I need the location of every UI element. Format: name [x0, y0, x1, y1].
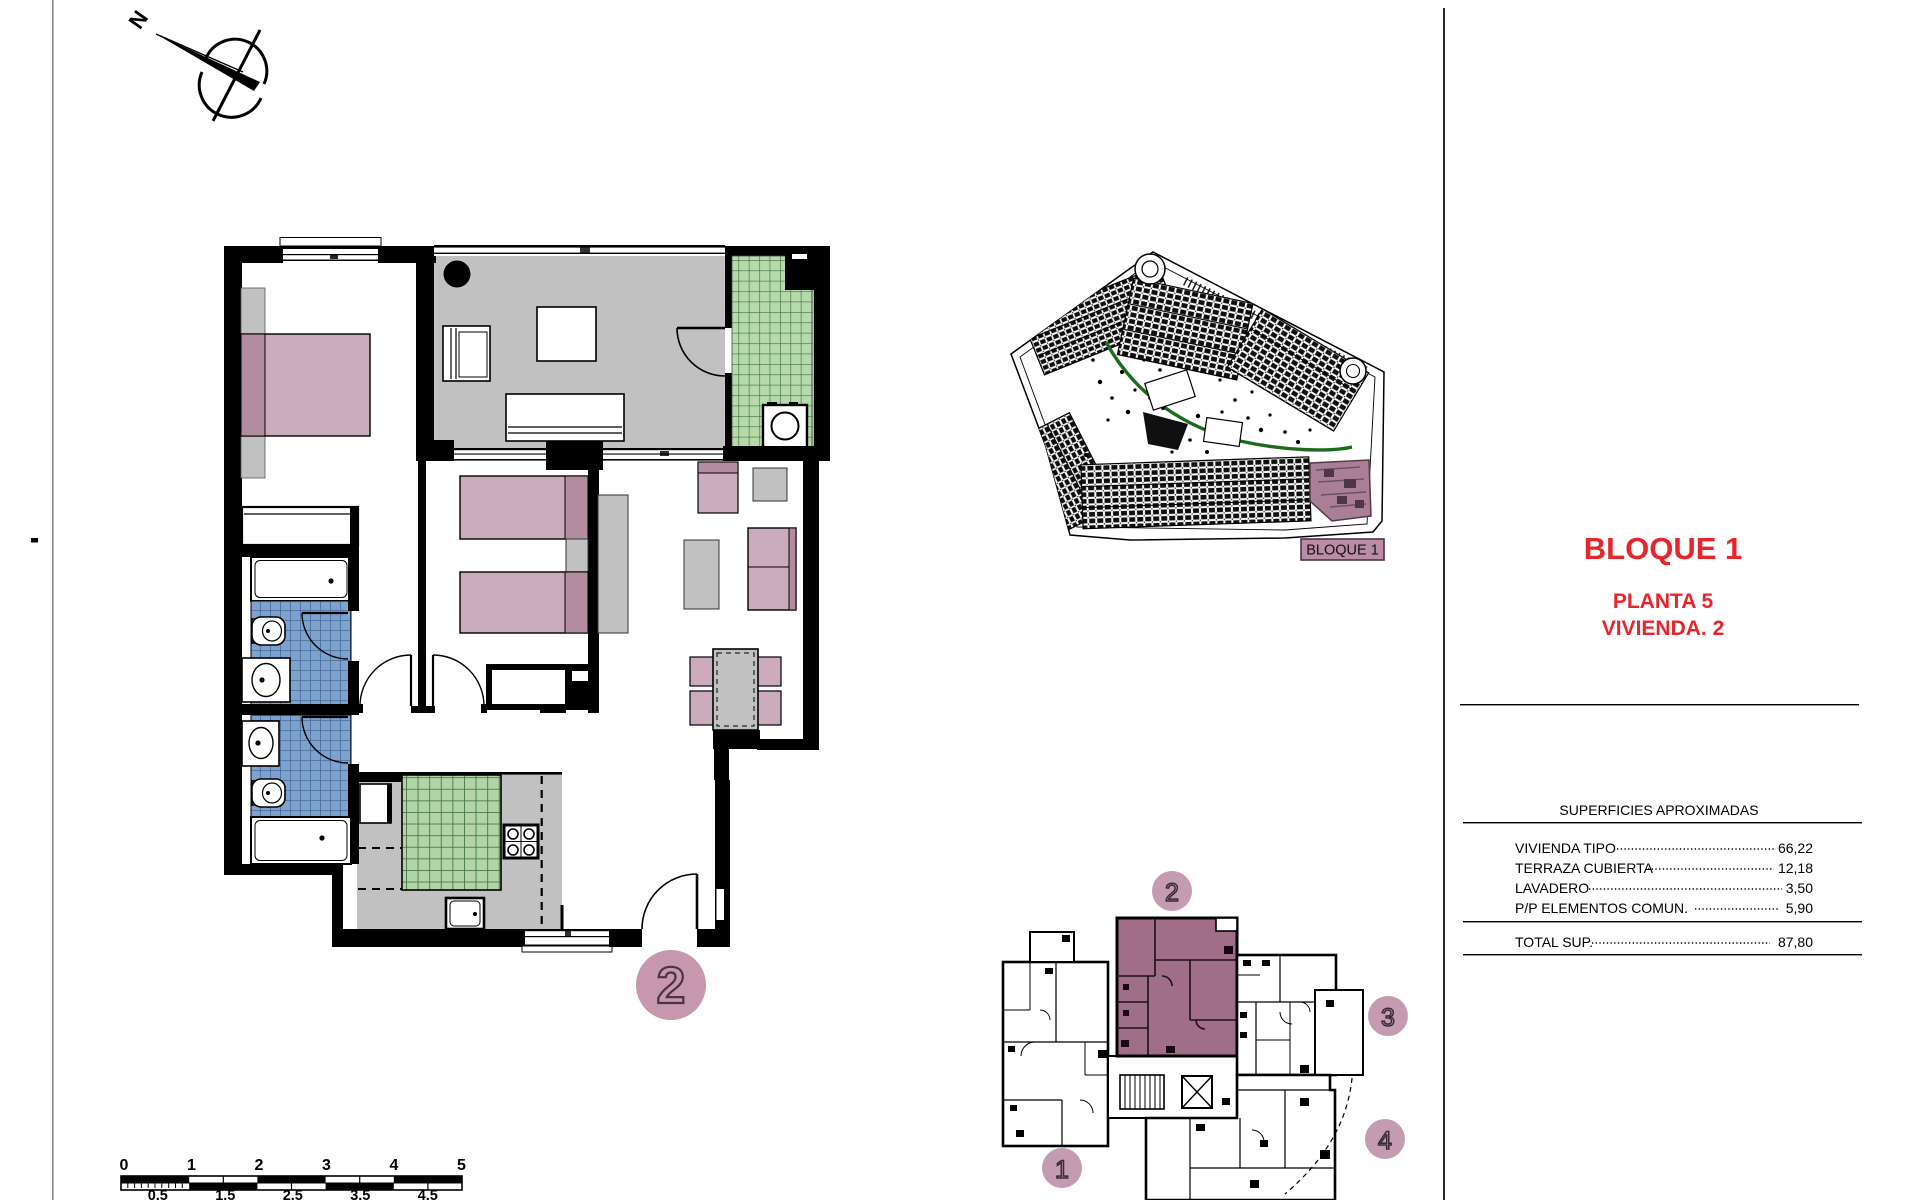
- svg-text:5: 5: [457, 1157, 466, 1174]
- svg-text:BLOQUE 1: BLOQUE 1: [1306, 543, 1379, 559]
- svg-text:TOTAL SUP.: TOTAL SUP.: [1515, 934, 1593, 950]
- svg-text:66,22: 66,22: [1778, 840, 1813, 856]
- svg-text:3,50: 3,50: [1786, 880, 1813, 896]
- svg-text:0.5: 0.5: [148, 1188, 168, 1200]
- svg-text:1: 1: [1055, 1156, 1069, 1184]
- svg-text:3.5: 3.5: [350, 1188, 370, 1200]
- svg-text:2: 2: [255, 1157, 264, 1174]
- svg-text:3: 3: [1381, 1004, 1395, 1032]
- svg-text:BLOQUE 1: BLOQUE 1: [1584, 531, 1742, 566]
- svg-text:P/P ELEMENTOS COMUN.: P/P ELEMENTOS COMUN.: [1515, 900, 1688, 916]
- svg-text:87,80: 87,80: [1778, 934, 1813, 950]
- svg-text:4: 4: [1378, 1127, 1392, 1155]
- svg-text:0: 0: [120, 1157, 129, 1174]
- svg-text:4: 4: [390, 1157, 399, 1174]
- svg-text:4.5: 4.5: [418, 1188, 438, 1200]
- svg-text:3: 3: [322, 1157, 331, 1174]
- svg-text:SUPERFICIES APROXIMADAS: SUPERFICIES APROXIMADAS: [1559, 802, 1758, 818]
- svg-text:VIVIENDA TIPO: VIVIENDA TIPO: [1515, 840, 1616, 856]
- svg-text:2: 2: [1165, 879, 1179, 907]
- svg-text:2.5: 2.5: [283, 1188, 303, 1200]
- svg-text:VIVIENDA. 2: VIVIENDA. 2: [1602, 617, 1725, 640]
- svg-text:5,90: 5,90: [1786, 900, 1813, 916]
- svg-text:2: 2: [657, 957, 686, 1015]
- svg-text:LAVADERO: LAVADERO: [1515, 880, 1589, 896]
- svg-text:1.5: 1.5: [215, 1188, 235, 1200]
- svg-text:1: 1: [187, 1157, 196, 1174]
- svg-text:12,18: 12,18: [1778, 860, 1813, 876]
- svg-text:PLANTA 5: PLANTA 5: [1613, 590, 1714, 613]
- svg-text:TERRAZA CUBIERTA: TERRAZA CUBIERTA: [1515, 860, 1654, 876]
